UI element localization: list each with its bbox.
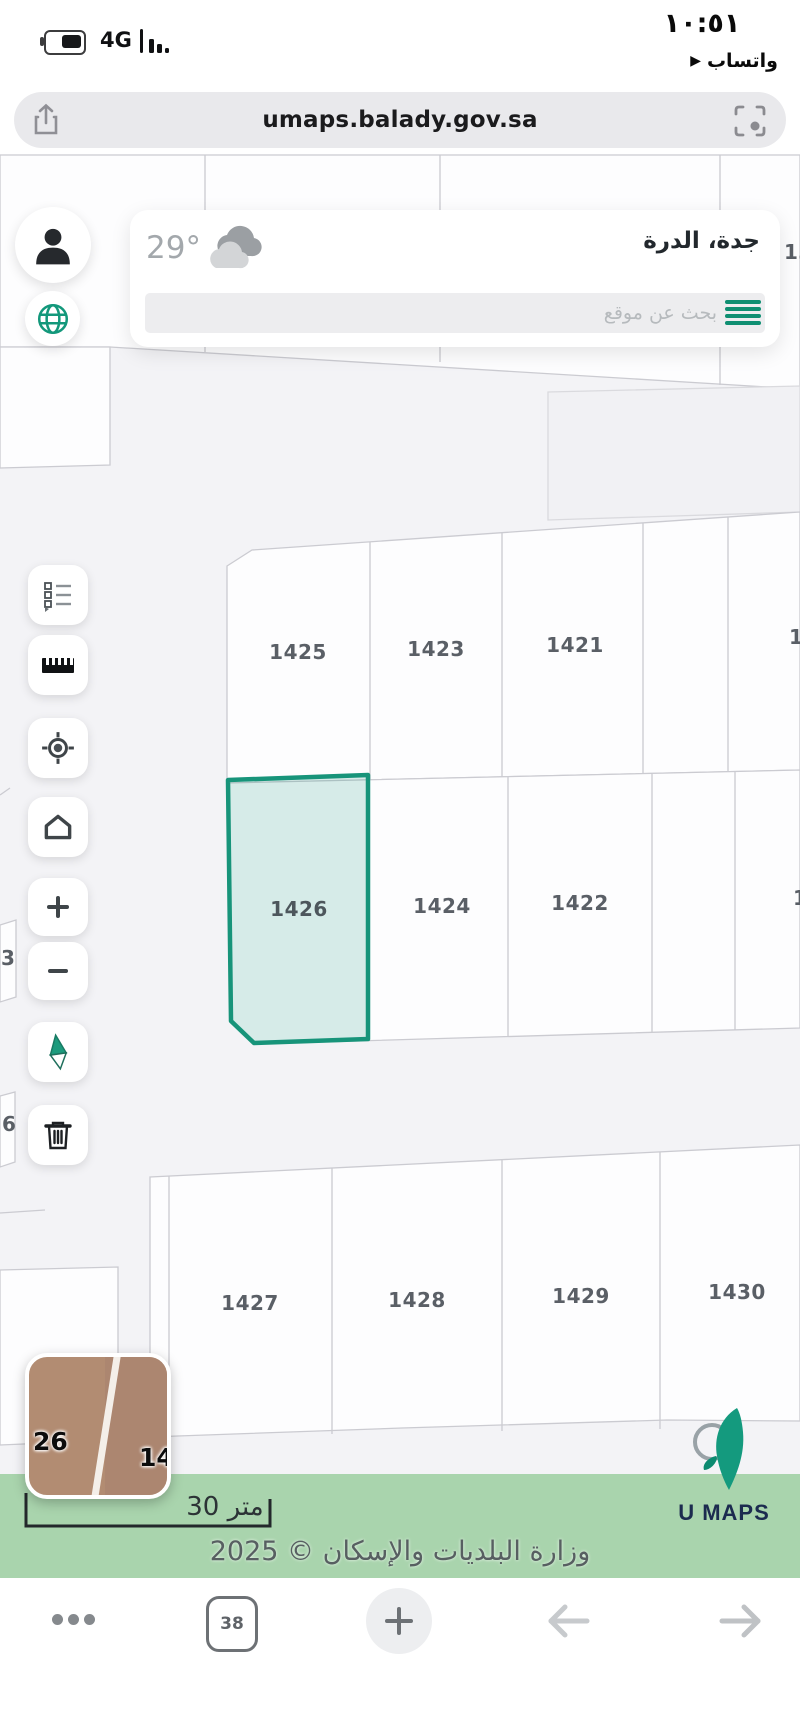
tabs-count: 38 bbox=[220, 1614, 244, 1634]
scale-bar-label: 30 متر bbox=[170, 1492, 280, 1522]
parcel-label[interactable]: 1421 bbox=[546, 633, 604, 657]
parcel-label[interactable]: 1427 bbox=[221, 1291, 279, 1315]
parcel-label-partial[interactable]: 1 bbox=[793, 886, 800, 910]
minus-icon bbox=[41, 954, 75, 988]
back-button[interactable] bbox=[543, 1598, 595, 1644]
parcel-label[interactable]: 1428 bbox=[388, 1288, 446, 1312]
parcel-label[interactable]: 1426 bbox=[270, 897, 328, 921]
map-header-card: جدة، الدرة 29° bbox=[130, 210, 780, 347]
search-menu-icon[interactable] bbox=[725, 297, 761, 329]
plus-icon bbox=[41, 890, 75, 924]
ruler-icon bbox=[39, 647, 77, 683]
globe-icon bbox=[35, 301, 71, 337]
home-button[interactable] bbox=[28, 797, 88, 857]
more-options-button[interactable] bbox=[52, 1610, 108, 1624]
zoom-out-button[interactable] bbox=[28, 942, 88, 1000]
parcel-label[interactable]: 1430 bbox=[708, 1280, 766, 1304]
overview-map-thumbnail[interactable]: 26 14 bbox=[25, 1353, 171, 1499]
browser-toolbar: 38 bbox=[0, 1580, 800, 1731]
location-search bbox=[145, 293, 765, 333]
parcel-label[interactable]: 1424 bbox=[413, 894, 471, 918]
search-input[interactable] bbox=[145, 293, 765, 333]
parcel-label[interactable]: 1422 bbox=[551, 891, 609, 915]
compass-icon bbox=[40, 1032, 76, 1072]
language-globe-button[interactable] bbox=[25, 291, 80, 346]
thumbnail-parcel-label: 26 bbox=[33, 1427, 68, 1456]
parcel-label[interactable]: 1429 bbox=[552, 1284, 610, 1308]
screen: 1425142314211426142414221427142814291430… bbox=[0, 0, 800, 1731]
umaps-logo-text: U MAPS bbox=[664, 1500, 784, 1526]
trash-icon bbox=[41, 1117, 75, 1153]
location-title: جدة، الدرة bbox=[643, 228, 760, 254]
layers-legend-icon bbox=[40, 577, 76, 613]
forward-button[interactable] bbox=[714, 1598, 766, 1644]
umaps-logo: U MAPS bbox=[664, 1406, 794, 1526]
tabs-button[interactable]: 38 bbox=[206, 1596, 258, 1652]
umaps-pin-icon bbox=[664, 1406, 784, 1501]
zoom-in-button[interactable] bbox=[28, 878, 88, 936]
measure-ruler-button[interactable] bbox=[28, 635, 88, 695]
profile-avatar-button[interactable] bbox=[15, 207, 91, 283]
parcel-label-partial[interactable]: 13 bbox=[784, 240, 800, 264]
locate-me-button[interactable] bbox=[28, 718, 88, 778]
parcel-label[interactable]: 1425 bbox=[269, 640, 327, 664]
parcel-label-partial[interactable]: 1 bbox=[789, 625, 800, 649]
locate-icon bbox=[40, 730, 76, 766]
home-icon bbox=[40, 809, 76, 845]
plus-icon bbox=[382, 1604, 416, 1638]
compass-button[interactable] bbox=[28, 1022, 88, 1082]
parcel-label-partial[interactable]: 3 bbox=[1, 946, 15, 970]
temperature-label: 29° bbox=[146, 230, 201, 266]
layers-legend-button[interactable] bbox=[28, 565, 88, 625]
parcel-label[interactable]: 1423 bbox=[407, 637, 465, 661]
delete-button[interactable] bbox=[28, 1105, 88, 1165]
weather-cloud-icon bbox=[202, 216, 280, 276]
person-icon bbox=[31, 223, 75, 267]
copyright-text: وزارة البلديات والإسكان © 2025 bbox=[0, 1536, 800, 1567]
thumbnail-parcel-label: 14 bbox=[139, 1443, 171, 1472]
new-tab-button[interactable] bbox=[366, 1588, 432, 1654]
parcel-label-partial[interactable]: 6 bbox=[2, 1112, 16, 1136]
back-arrow-icon bbox=[543, 1598, 595, 1644]
forward-arrow-icon bbox=[714, 1598, 766, 1644]
